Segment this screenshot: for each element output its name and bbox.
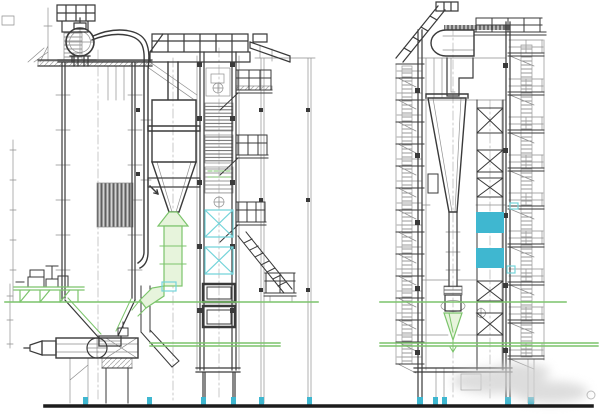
cad-drawing-canvas bbox=[0, 0, 600, 416]
cone-side-box bbox=[428, 174, 438, 193]
cyan-duct-section-2 bbox=[476, 248, 504, 268]
access-stair bbox=[238, 232, 292, 293]
roof-stair bbox=[396, 2, 458, 62]
watermark-smudge bbox=[452, 363, 588, 403]
stair-landing bbox=[264, 273, 296, 296]
cyclone-barrel bbox=[148, 62, 200, 162]
backpass-top-box bbox=[211, 74, 224, 83]
cyan-duct-section-1 bbox=[476, 212, 504, 233]
buckstay-ticks bbox=[56, 95, 142, 270]
platform-c bbox=[220, 202, 266, 242]
green-platform bbox=[14, 287, 84, 302]
landing-legs bbox=[270, 296, 292, 302]
drum-end bbox=[431, 30, 474, 56]
cooler-legs bbox=[70, 358, 88, 403]
watermark-ring bbox=[587, 391, 595, 399]
green-linework bbox=[5, 171, 598, 352]
backpass-base bbox=[196, 368, 240, 402]
feed-pump bbox=[16, 266, 68, 287]
tube-bundle-2 bbox=[205, 135, 233, 163]
light-linework bbox=[2, 8, 544, 403]
sealpot-cone bbox=[444, 313, 462, 340]
cyclone-support-ring bbox=[148, 178, 200, 187]
elevation-tick-post bbox=[10, 140, 16, 302]
steam-pipe-to-backpass bbox=[146, 62, 197, 99]
sealpot-hatch-cap bbox=[444, 286, 462, 295]
furnace-walls bbox=[58, 62, 150, 300]
heat-exchanger-hatch bbox=[97, 183, 133, 227]
left-post bbox=[7, 284, 13, 348]
boiler-elevation-drawing bbox=[0, 0, 600, 416]
burner-nozzle bbox=[24, 341, 42, 355]
drum-dark-band bbox=[444, 25, 510, 30]
drum-end-inner bbox=[443, 36, 474, 50]
tube-bundle-1 bbox=[205, 103, 233, 131]
burner-cap bbox=[42, 341, 56, 355]
centerlines bbox=[98, 26, 490, 400]
loopseal-elbow bbox=[140, 286, 164, 308]
cyclone-cone-side bbox=[426, 94, 468, 212]
loopseal-column bbox=[164, 226, 182, 286]
left-ladder-strip bbox=[402, 66, 412, 364]
cyan-boxlet-right-2 bbox=[507, 266, 515, 273]
cyan-linework bbox=[162, 203, 518, 291]
mast-and-braces bbox=[2, 8, 52, 62]
platform-floor-plate bbox=[236, 86, 272, 90]
loopseal-flare bbox=[158, 212, 188, 226]
burner-sub-box bbox=[102, 358, 132, 368]
